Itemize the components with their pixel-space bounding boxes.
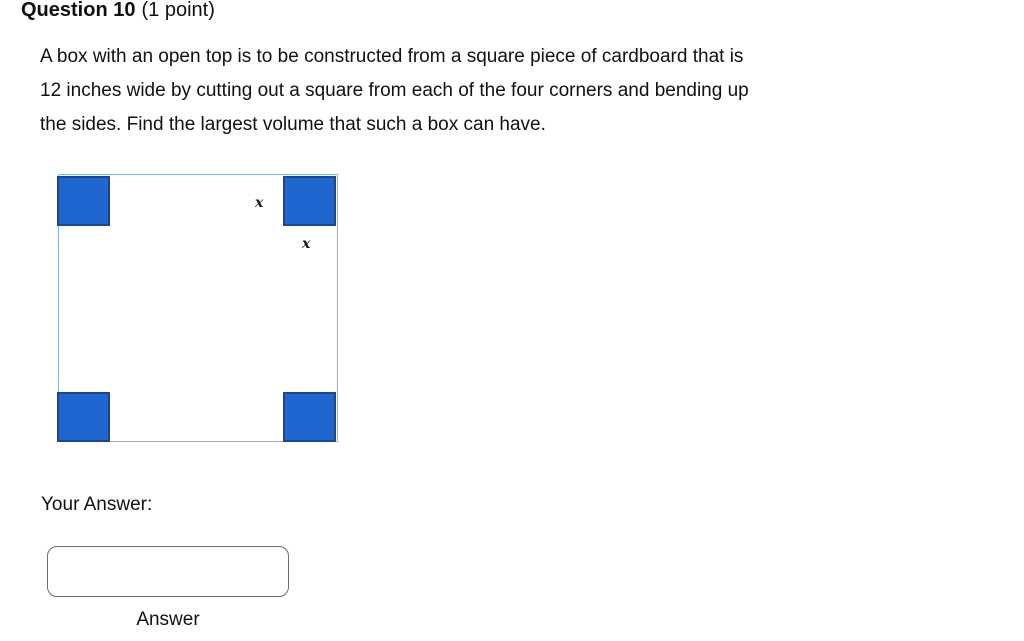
cutout-square-bottom-left	[57, 392, 110, 442]
cutout-square-top-right	[283, 176, 336, 226]
cutout-height-label: x	[302, 237, 310, 251]
question-text-line: A box with an open top is to be construc…	[40, 40, 749, 74]
question-text: A box with an open top is to be construc…	[40, 40, 749, 142]
figure-cardboard-diagram: x x	[58, 174, 338, 442]
question-text-line: 12 inches wide by cutting out a square f…	[40, 74, 749, 108]
question-text-line: the sides. Find the largest volume that …	[40, 108, 749, 142]
question-header: Question 10(1 point)	[21, 0, 215, 23]
cutout-width-label: x	[255, 196, 263, 210]
cutout-square-top-left	[57, 176, 110, 226]
question-number: Question 10	[21, 0, 135, 21]
question-points: (1 point)	[141, 0, 214, 21]
answer-input[interactable]	[47, 546, 289, 597]
answer-label: Answer	[47, 607, 289, 633]
your-answer-prompt: Your Answer:	[41, 492, 152, 518]
cutout-square-bottom-right	[283, 392, 336, 442]
question-page: Question 10(1 point) A box with an open …	[0, 0, 1024, 641]
